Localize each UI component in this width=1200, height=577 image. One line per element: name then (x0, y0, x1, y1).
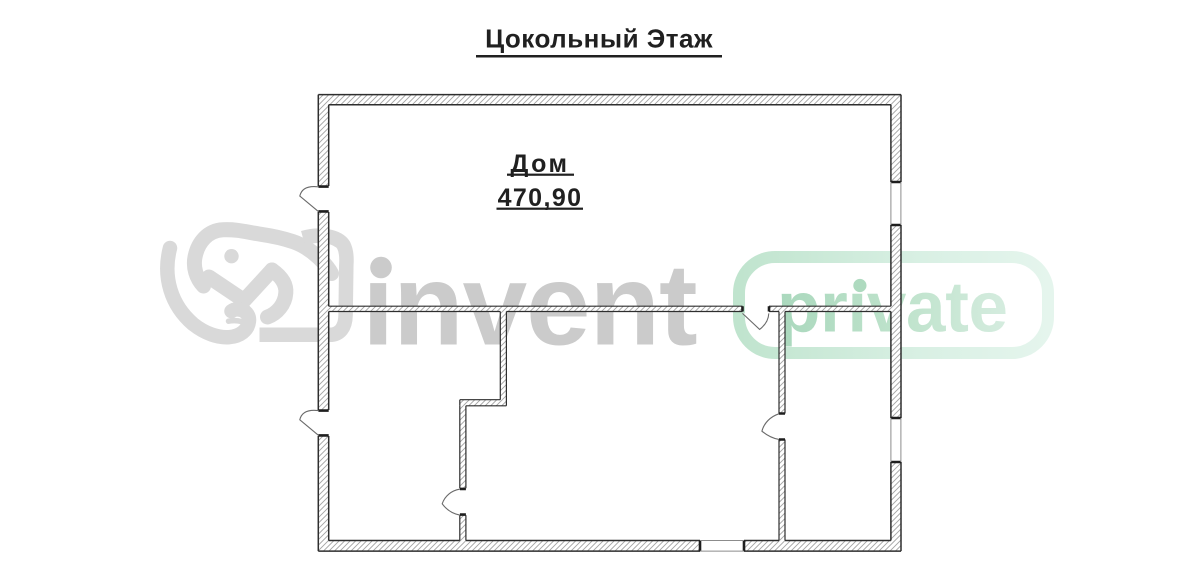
svg-text:Цокольный Этаж: Цокольный Этаж (485, 24, 713, 54)
svg-text:ınvent: ınvent (362, 240, 697, 370)
